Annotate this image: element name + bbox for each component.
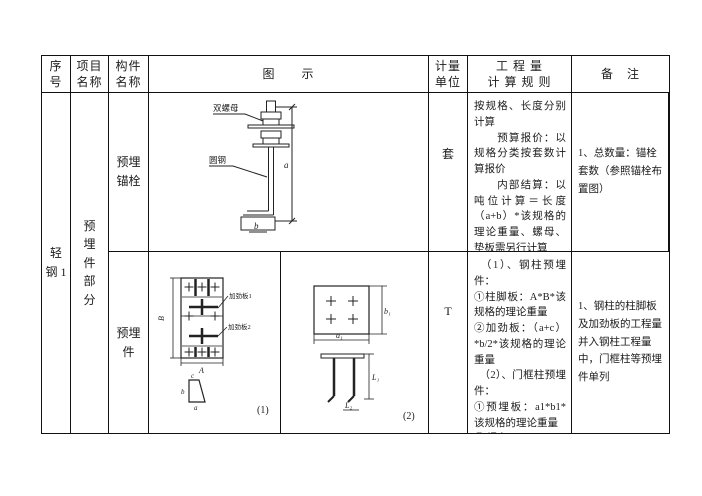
group-project-name: 预 埋 件 部 分 — [71, 93, 109, 433]
double-nut-label: 双螺母 — [213, 103, 239, 113]
row1-calc-rules: 按规格、长度分别计算 预算报价：以规格分类按套数计算报价 内部结算：以吨位计算＝… — [468, 93, 572, 252]
remark-text: 1、钢柱的柱脚板及加劲板的工程量并入钢柱工程量中，门框柱等预埋件单列 — [578, 298, 663, 387]
base-plate-figure-cell: 加劲板1 加劲板2 B A c b a (1) — [149, 252, 281, 433]
rule-paragraph: 预算报价：以规格分类按套数计算报价 — [474, 131, 566, 178]
header-unit: 计量 单位 — [429, 56, 468, 93]
row2-remark: 1、钢柱的柱脚板及加劲板的工程量并入钢柱工程量中，门框柱等预埋件单列 — [572, 252, 669, 433]
rule-paragraph: ②螺杆：(L1+L2)*该规格的理论重量 — [474, 431, 566, 433]
row1-illustration-anchor-bolt: 双螺母 圆钢 a b — [149, 93, 429, 252]
door-frame-embed-figure-cell: b₁ a₁ L₁ L₂ (2) — [281, 252, 428, 433]
figure2-caption: (2) — [403, 411, 415, 422]
dim-c-label: c — [191, 372, 195, 380]
rule-paragraph: ①预埋板：a1*b1*该规格的理论重量 — [474, 400, 566, 432]
rule-paragraph: ②加劲板：（a+c）*b/2*该规格的理论重量 — [474, 321, 566, 368]
row1-component: 预埋 锚栓 — [109, 93, 149, 252]
rule-paragraph: （2）、门框柱预埋件： — [474, 368, 566, 400]
rule-paragraph: ①柱脚板：A*B*该规格的理论重量 — [474, 290, 566, 322]
dim-L2-label: L₂ — [344, 401, 352, 410]
round-steel-label: 圆钢 — [209, 155, 226, 165]
row1-remark: 1、总数量：锚栓套数（参照锚栓布置图） — [572, 93, 669, 252]
header-serial: 序 号 — [42, 56, 71, 93]
dim-B-label: B — [157, 316, 166, 321]
row1-unit: 套 — [429, 93, 468, 252]
row2-illustration-embedded-parts: 加劲板1 加劲板2 B A c b a (1) — [149, 252, 429, 433]
header-illustration: 图 示 — [149, 56, 429, 93]
row2-component: 预埋 件 — [109, 252, 149, 433]
remark-text: 1、总数量：锚栓套数（参照锚栓布置图） — [578, 145, 662, 199]
dim-b-label: b — [181, 388, 185, 396]
rule-paragraph: 内部结算：以吨位计算＝长度（a+b）*该规格的理论重量、螺母、垫板需另行计算 — [474, 178, 566, 252]
header-calc-rules: 工 程 量 计 算 规 则 — [468, 56, 572, 93]
stiffener1-label: 加劲板1 — [229, 291, 252, 300]
figure1-caption: (1) — [257, 405, 269, 416]
dim-L1-label: L₁ — [371, 373, 379, 382]
quantity-rules-table: 序 号 项目 名称 构件 名称 图 示 计量 单位 工 程 量 计 算 规 则 … — [41, 55, 670, 434]
dim-b-label: b — [254, 221, 259, 231]
rule-paragraph: （1）、钢柱预埋件： — [474, 258, 566, 290]
dim-a-label: a — [194, 404, 198, 412]
stiffener2-label: 加劲板2 — [228, 322, 251, 331]
row2-calc-rules: （1）、钢柱预埋件： ①柱脚板：A*B*该规格的理论重量 ②加劲板：（a+c）*… — [468, 252, 572, 433]
dim-b1-label: b₁ — [384, 307, 391, 316]
row2-unit: T — [429, 252, 468, 433]
dim-a-label: a — [284, 160, 289, 170]
header-component-name: 构件 名称 — [109, 56, 149, 93]
column-base-plate-figure: 加劲板1 加劲板2 B A c b a (1) — [149, 252, 280, 432]
rule-paragraph: 按规格、长度分别计算 — [474, 99, 566, 131]
anchor-bolt-figure: 双螺母 圆钢 a b — [149, 93, 429, 251]
door-frame-embed-figure: b₁ a₁ L₁ L₂ (2) — [281, 252, 428, 432]
header-remark: 备 注 — [572, 56, 669, 93]
group-serial: 轻 钢 1 — [42, 93, 71, 433]
dim-a1-label: a₁ — [336, 331, 343, 340]
dim-A-label: A — [198, 366, 204, 375]
document-page: 序 号 项目 名称 构件 名称 图 示 计量 单位 工 程 量 计 算 规 则 … — [0, 0, 702, 496]
header-project-name: 项目 名称 — [71, 56, 109, 93]
